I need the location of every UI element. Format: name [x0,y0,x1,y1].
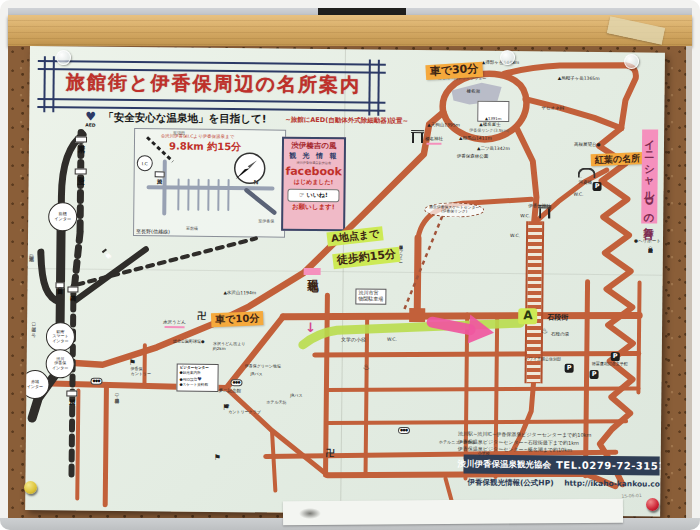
map-label: 高崎 [67,286,78,292]
onsen-icon: ♨ [541,327,548,335]
ann-genzaichi: 現在地 [304,268,321,275]
map-label: 高根展望台● [574,142,600,147]
map-label: 渋川市営 物聞駐車場 [355,288,386,304]
wood-rail [8,15,692,46]
ann-down-arrow: ↓ [305,321,316,336]
map-label: 上野 [75,168,87,174]
map-label: W.C. [520,213,530,218]
map-label: ヤセオネ峠 [541,105,564,110]
map-label: 赤城 インター [25,370,49,399]
red-pushpin [646,498,659,511]
map-label: 水沢うどん街より 約2km [213,342,246,352]
clear-pushpin [624,54,639,69]
map-label: 徳冨蘆花記念文学館 [592,362,628,367]
map-label: 総合公園野球場● [173,340,205,345]
board-edge [686,46,692,518]
map-label: 駒寄 スマート インター [46,322,75,351]
map-label: ▲相馬山1411m [459,135,492,141]
bus-icon: ●●● [90,378,102,385]
manji-icon: 卍 [197,312,206,321]
website-url: http://ikaho-kankou.com/ [564,479,665,489]
ann-koyo-meisho: 紅葉の名所 [591,152,645,167]
yellow-pushpin [24,481,37,494]
photo-of-corkboard: 旅館街と伊香保周辺の名所案内 ♥ AED 「安全安心な温泉地」を目指して! ~旅… [0,0,700,530]
map-label: 石段の湯 [551,331,569,336]
bus-icon: ●●● [398,427,410,434]
paper-scrap [283,499,623,525]
ann-initial-d: イニシャルDの舞台 [641,129,658,223]
map-label: カントリークラブ [228,410,261,415]
map-label: ホテル天坊 [266,400,286,405]
torii-icon [411,130,424,143]
map-poster: 旅館街と伊香保周辺の名所案内 ♥ AED 「安全安心な温泉地」を目指して! ~旅… [25,46,665,517]
association-name: 渋川伊香保温泉観光協会 [457,458,551,471]
p-icon: P [590,370,599,379]
clear-pushpin [56,50,71,65]
map-label: ホテルニュー伊香保 [439,440,476,445]
bus-icon: ●●● [230,379,242,386]
map-label: JRバス [251,372,263,377]
association-bar: 渋川伊香保温泉観光協会 TEL.0279-72-3151 [464,455,660,476]
phone-number: TEL.0279-72-3151 [556,460,665,472]
map-label: 〈関越自動車道〉 [55,282,64,288]
p-icon: P [611,352,620,361]
p-icon: P [565,364,574,373]
manji-icon: 卍 [326,449,335,458]
ann-car-10min: 車で10分 [211,311,264,327]
map-label: 伊香保グリーン牧場 [245,364,281,369]
map-label: ●ヘリポート [634,238,661,243]
p-icon: P [593,182,602,191]
map-label: ハワイ王国公使別邸 [525,357,561,362]
map-label: 伊香保リンク(3.5km) [469,129,509,134]
map-label: (国道17号) [31,322,36,331]
map-label: 前橋 インター [48,202,77,231]
map-label: W.C. [573,192,583,197]
map-label: 東京 [75,136,87,142]
map-label: ▲二ツ岳1342m [477,146,510,152]
ann-toho-15min: 徒歩約15分 [332,247,401,269]
ann-a-chiten: A地点まで [326,226,383,246]
map-label: ▲天狗山1395m [427,122,460,128]
onsen-icon: ♨ [363,364,370,372]
map-label: 渋川 [66,390,77,396]
golf-icon: ⚑ [129,359,136,367]
website-label: 伊香保観光情報(公式HP) [467,478,553,488]
map-label: 至長野(信越線) [136,229,170,235]
map-label: JRバス [290,394,302,399]
map-label: ▲水沢山1194m [223,290,256,296]
map-label: ▲1391m [477,101,509,122]
map-label: 榛名湖 [467,89,481,94]
website-line: 伊香保観光情報(公式HP) http://ikaho-kankou.com/ [467,478,665,490]
ink-smudge [299,508,321,519]
map-label: 伊香保森林公園 [457,153,489,159]
map-label: 榛名神社 [425,136,443,141]
torii-icon [538,205,551,218]
map-label: (上越線・吾妻線) [114,393,119,397]
map-label: W.C. [387,337,397,342]
map-label: 渋川 伊香保 インター [46,349,75,378]
map-label: W.C. [510,233,520,238]
map-label: 文学の小径 [341,337,366,343]
map-label: 県営伊香保スケートセンター (伊香保リンク) [424,202,484,217]
ann-point-a: A [518,308,537,324]
date-stamp: 15-06-01 [621,493,642,499]
map-label: 夢二記念館 [218,388,241,393]
map-label: ▲榛名富士 [479,122,501,127]
map-label: 小学校 [478,452,490,457]
map-label: ▲烏帽子ヶ岳1365m [558,76,600,82]
golf-icon: ⚑ [222,404,229,412]
map-label: 河鹿橋 [579,180,593,185]
map-label: 石段街 [547,313,568,321]
bridge-icon [578,168,596,178]
golf-icon: ⚑ [214,454,221,462]
map-label: 〈北陸新幹線〉 [102,248,107,253]
map-label: 伊香保 カントリー [131,367,151,376]
clear-pushpin [500,50,515,65]
map-label: 水沢うどん [163,319,186,324]
